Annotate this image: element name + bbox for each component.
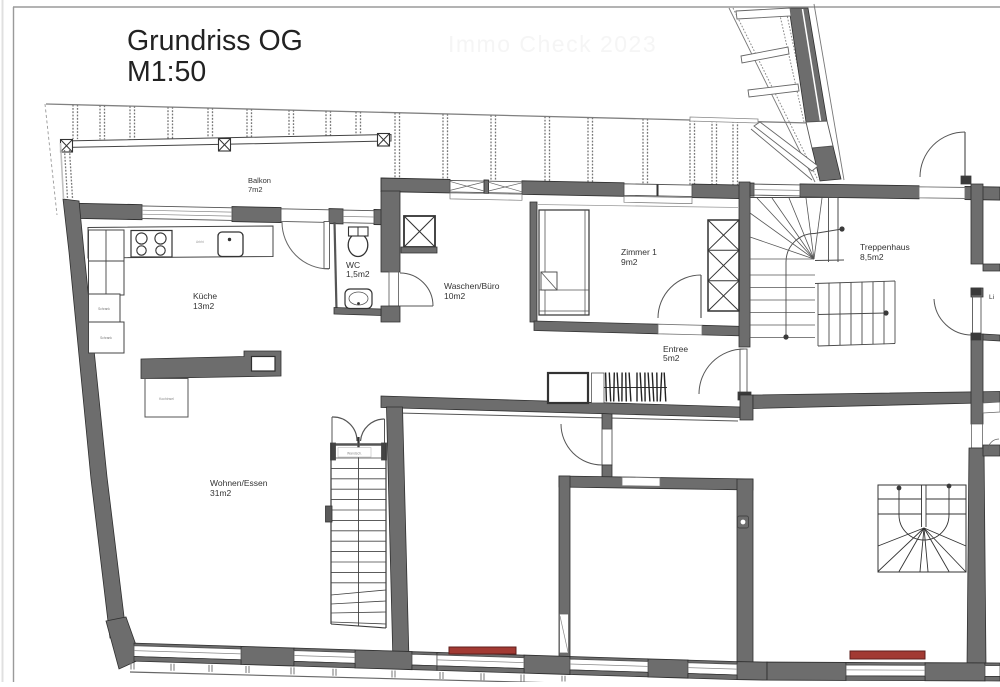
svg-text:Schrank: Schrank xyxy=(98,307,110,311)
svg-text:7m2: 7m2 xyxy=(248,185,263,194)
svg-text:Immo Check 2023: Immo Check 2023 xyxy=(448,31,657,57)
svg-text:Waschen/Büro: Waschen/Büro xyxy=(444,281,500,291)
svg-text:Zimmer 1: Zimmer 1 xyxy=(621,247,657,257)
svg-text:10m2: 10m2 xyxy=(444,291,466,301)
svg-text:Kochinsel: Kochinsel xyxy=(159,397,174,401)
svg-text:Wandsch.: Wandsch. xyxy=(347,452,362,456)
svg-text:Li: Li xyxy=(989,294,994,301)
svg-text:Treppenhaus: Treppenhaus xyxy=(860,242,910,252)
svg-text:Schrank: Schrank xyxy=(100,336,112,340)
svg-text:M1:50: M1:50 xyxy=(127,56,206,88)
svg-text:1,5m2: 1,5m2 xyxy=(346,269,370,279)
svg-text:5m2: 5m2 xyxy=(663,353,680,363)
svg-text:Arbht: Arbht xyxy=(196,240,204,244)
svg-text:Balkon: Balkon xyxy=(248,176,271,185)
svg-text:9m2: 9m2 xyxy=(621,257,638,267)
svg-text:13m2: 13m2 xyxy=(193,301,215,311)
svg-text:Küche: Küche xyxy=(193,291,217,301)
svg-text:Wohnen/Essen: Wohnen/Essen xyxy=(210,478,268,488)
svg-text:31m2: 31m2 xyxy=(210,488,232,498)
svg-text:Grundriss OG: Grundriss OG xyxy=(127,25,303,57)
svg-text:8,5m2: 8,5m2 xyxy=(860,252,884,262)
